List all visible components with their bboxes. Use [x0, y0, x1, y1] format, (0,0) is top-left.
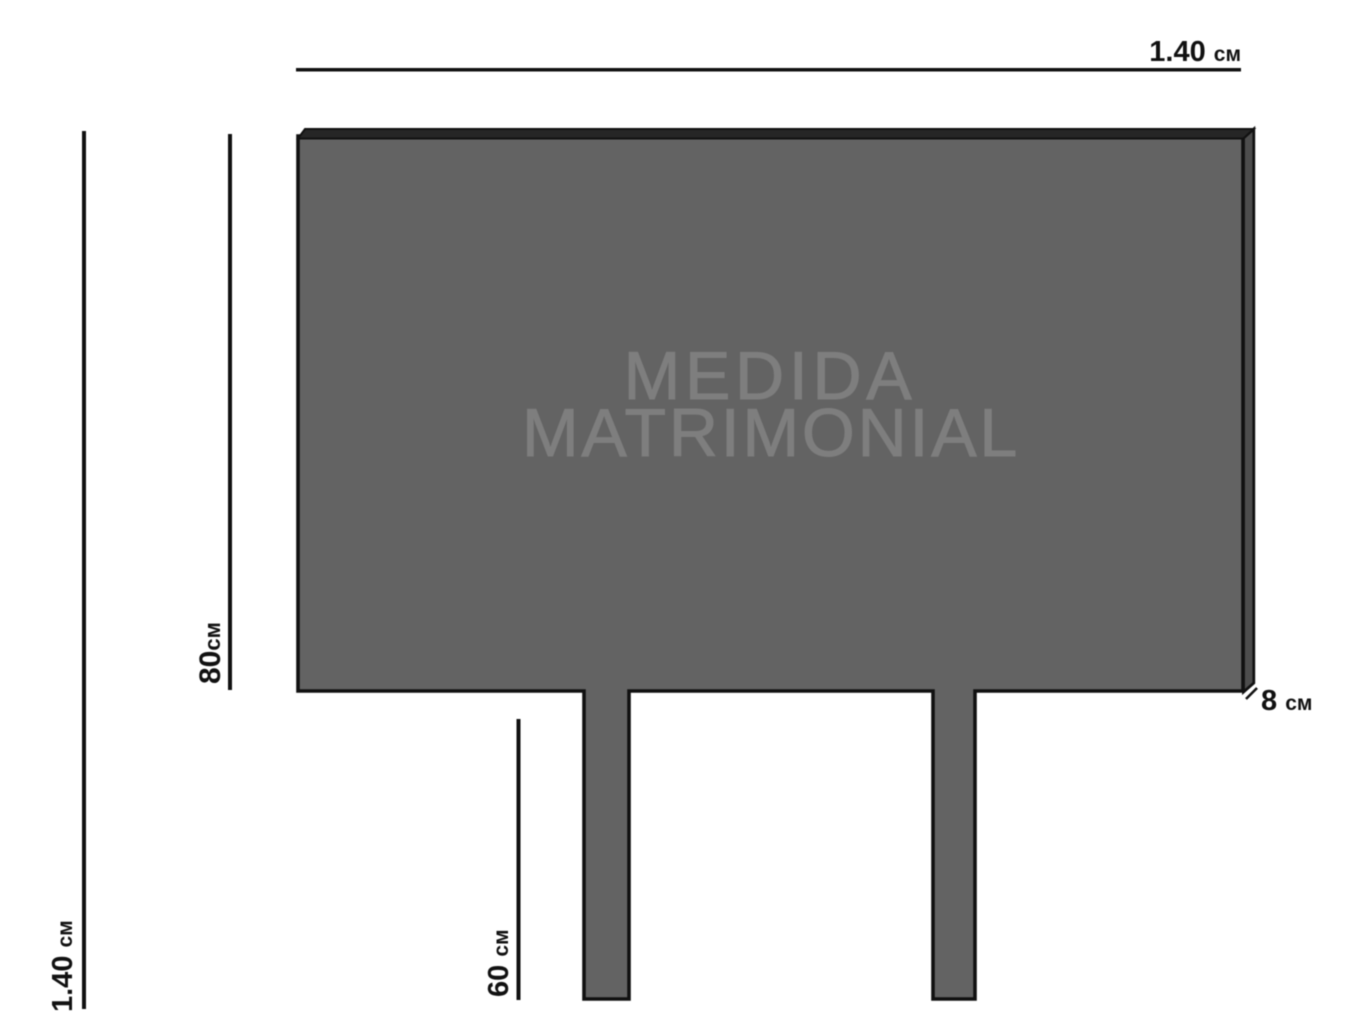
svg-text:MATRIMONIAL: MATRIMONIAL — [522, 395, 1020, 471]
